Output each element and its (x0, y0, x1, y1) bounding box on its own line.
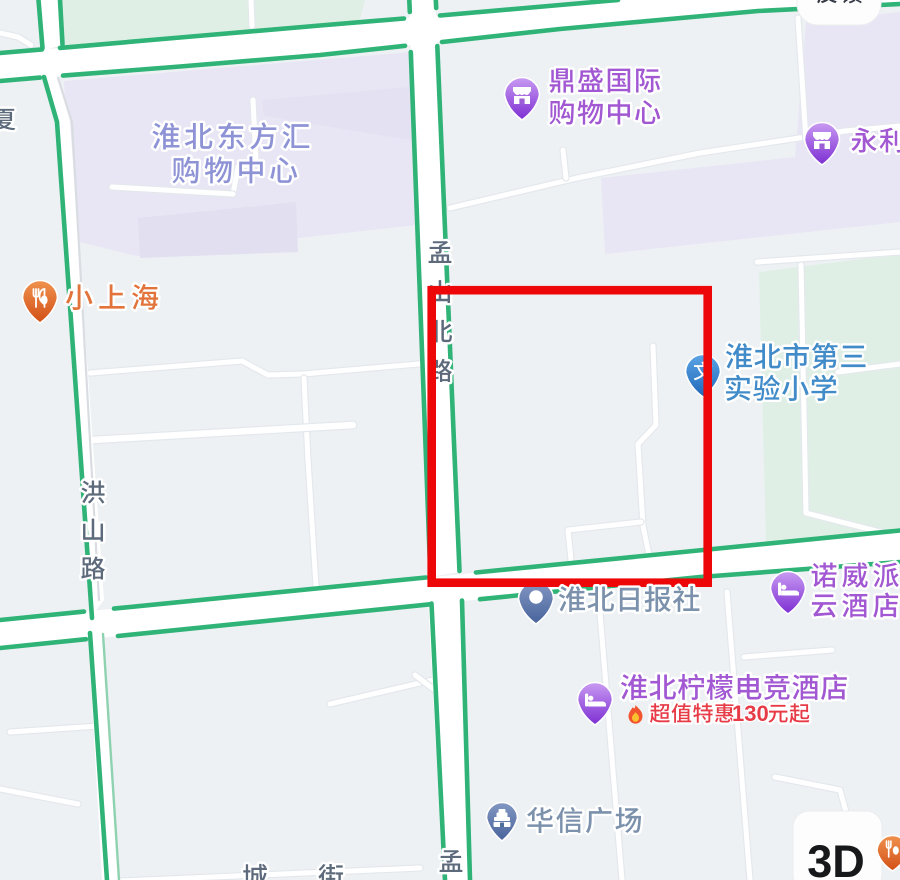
svg-text:130: 130 (732, 701, 769, 726)
svg-text:3D: 3D (807, 836, 865, 880)
